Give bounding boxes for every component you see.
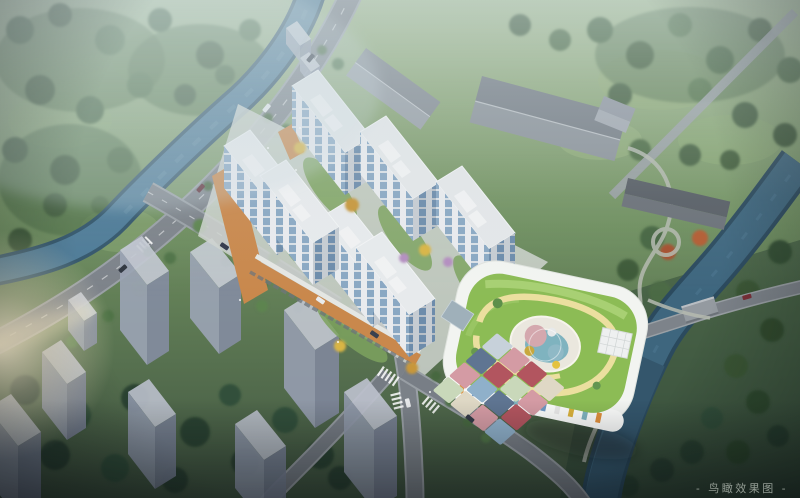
caption-text: - 鸟瞰效果图 - [696, 481, 788, 495]
aerial-rendering-svg: - 鸟瞰效果图 - [0, 0, 800, 498]
aerial-rendering-image: - 鸟瞰效果图 - [0, 0, 800, 498]
bottom-shade [0, 0, 800, 498]
